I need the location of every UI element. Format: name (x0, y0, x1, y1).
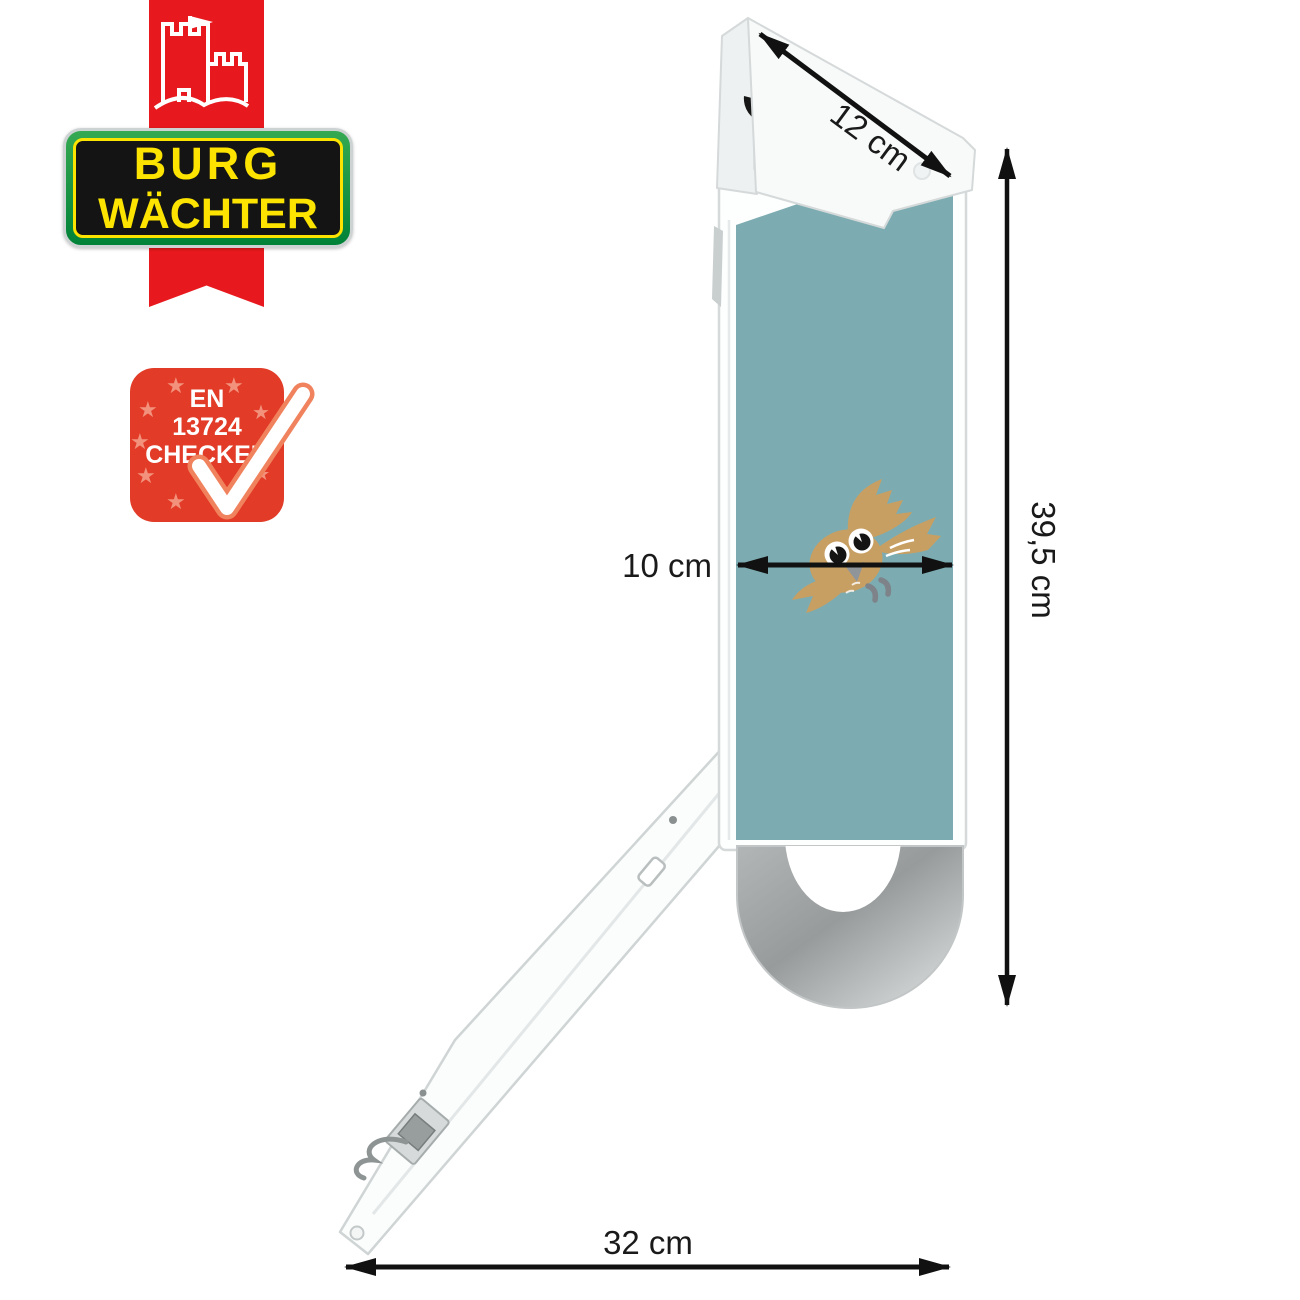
euro-star-icon: ★ (166, 492, 186, 514)
arm-screw (420, 1090, 427, 1097)
dim-label-height: 39,5 cm (1025, 501, 1062, 618)
product-image: BURG WÄCHTER ★ ★ ★ ★ ★ ★ ★ ★ ★ ★ EN 1372… (0, 0, 1300, 1300)
mounting-arm (340, 744, 726, 1254)
checkmark-icon (185, 378, 320, 538)
arm-tip-hole (351, 1227, 364, 1240)
front-panel (736, 151, 953, 840)
dim-label-panel-width: 10 cm (622, 547, 712, 584)
arm-screw (669, 816, 677, 824)
euro-star-icon: ★ (136, 466, 156, 488)
roof-screw (914, 163, 930, 179)
dim-label-arm-length: 32 cm (603, 1224, 693, 1261)
newspaper-holder-illustration: 12 cm 10 cm 39,5 cm 32 cm (0, 0, 1300, 1300)
